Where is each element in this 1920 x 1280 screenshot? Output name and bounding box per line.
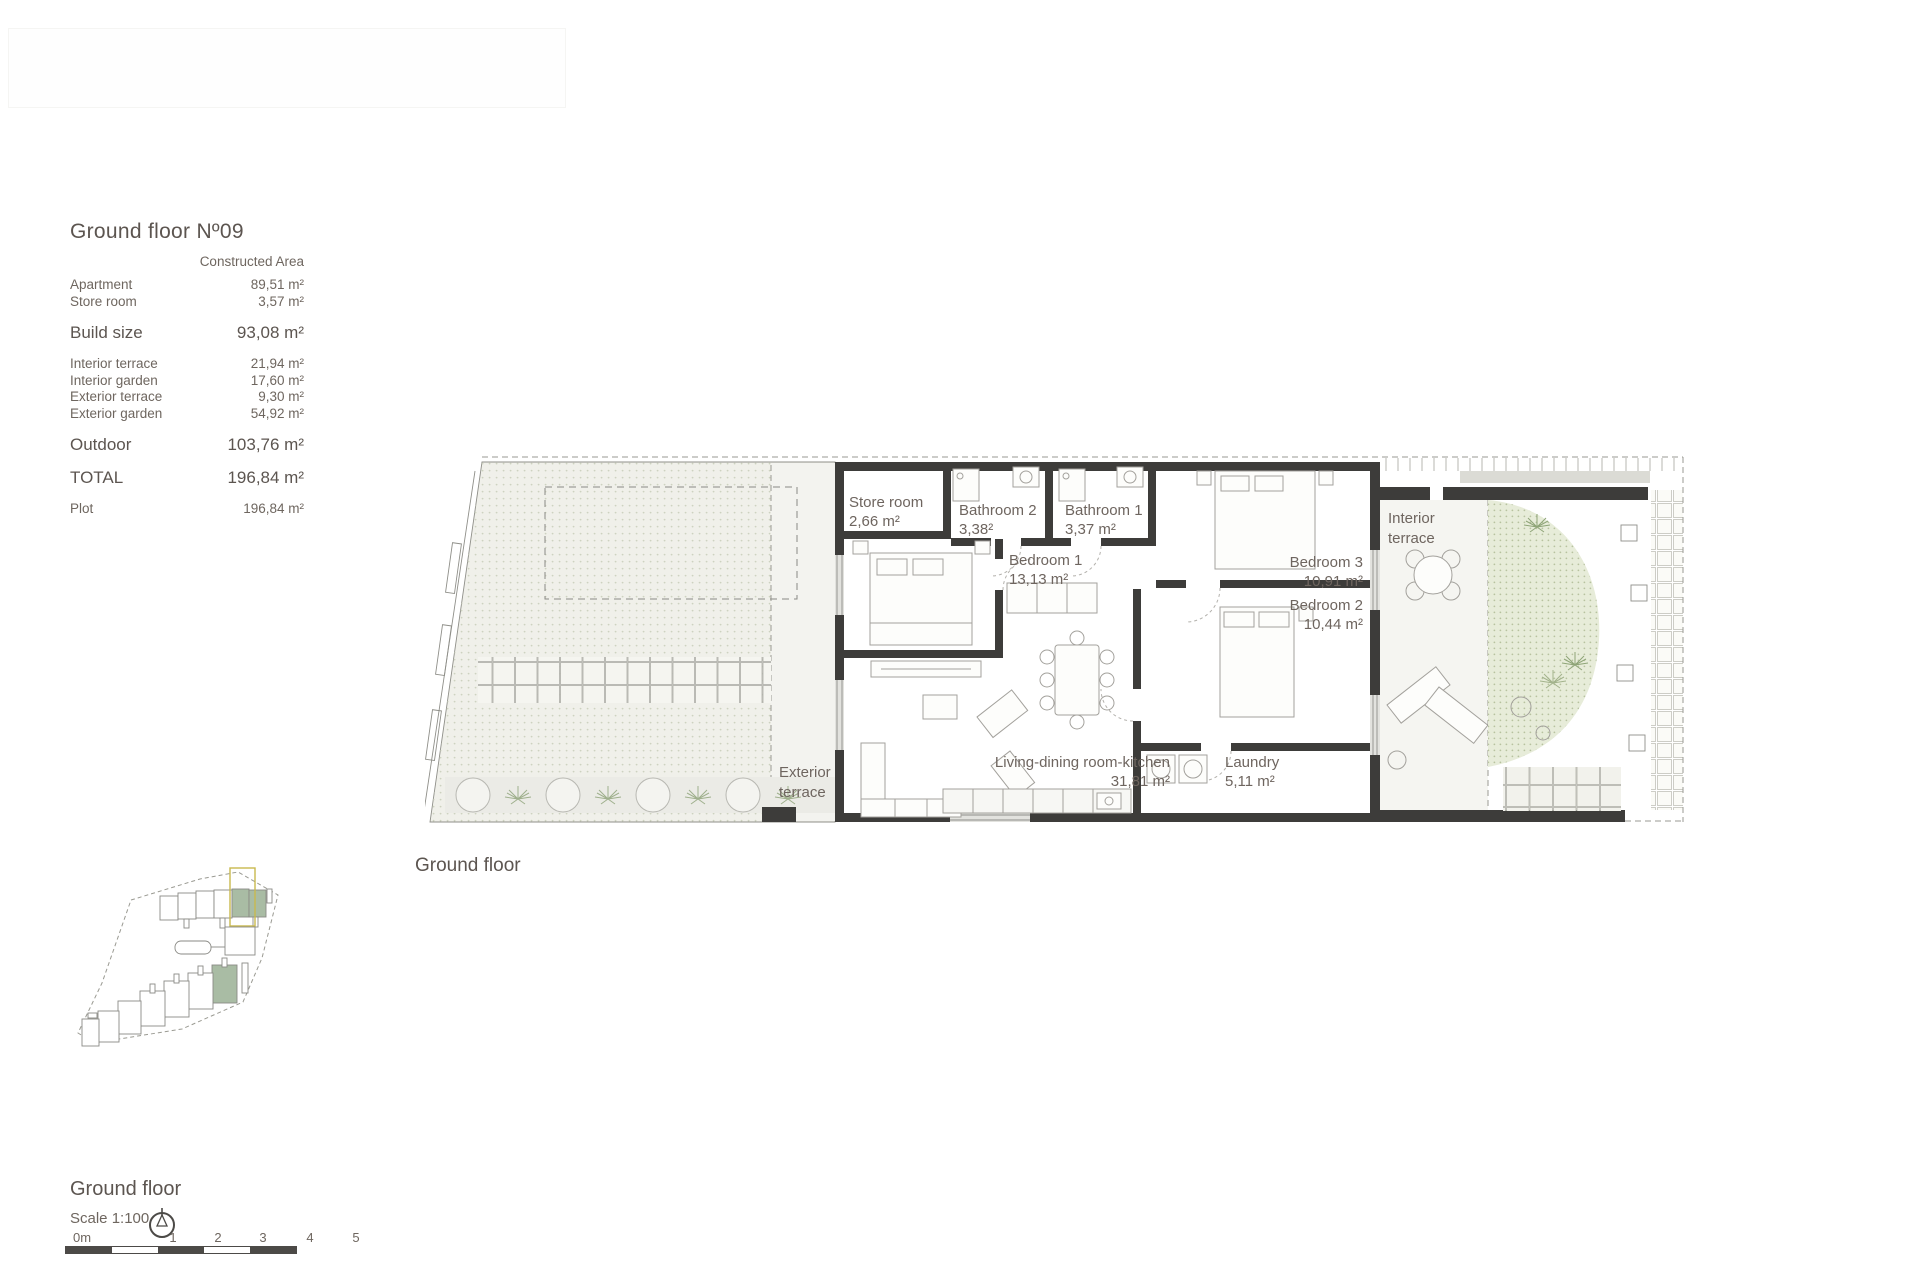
table-row-outdoor: Outdoor103,76 m² bbox=[70, 435, 304, 455]
scale-bar bbox=[66, 1247, 296, 1253]
bedroom-2-label: Bedroom 2 bbox=[1290, 597, 1363, 614]
armchairs bbox=[923, 690, 1035, 797]
site-key-plan bbox=[60, 865, 300, 1065]
table-row: Store room3,57 m² bbox=[70, 294, 304, 311]
page-title: Ground floor Nº09 bbox=[70, 220, 304, 244]
table-row-plot: Plot196,84 m² bbox=[70, 501, 304, 518]
laundry-area: 5,11 m² bbox=[1225, 773, 1275, 790]
table-row: Interior terrace21,94 m² bbox=[70, 356, 304, 373]
plan-caption: Ground floor bbox=[415, 855, 521, 877]
exterior-terrace-label-1: Exterior bbox=[779, 764, 831, 781]
floor-plan-sheet: Ground floor Nº09 Constructed Area Apart… bbox=[0, 0, 1920, 1280]
scan-artifact bbox=[8, 28, 566, 108]
center-block bbox=[175, 927, 255, 955]
table-row: Exterior garden54,92 m² bbox=[70, 406, 304, 423]
boundary-band bbox=[1460, 471, 1650, 483]
bedroom-1-label: Bedroom 1 bbox=[1009, 552, 1082, 569]
kitchen-counter bbox=[943, 789, 1131, 813]
bathroom-1-fixtures bbox=[1059, 467, 1143, 501]
table-row: Interior garden17,60 m² bbox=[70, 373, 304, 390]
paver-grid bbox=[478, 657, 771, 703]
legend-title: Ground floor bbox=[70, 1178, 181, 1201]
bathroom-2-fixtures bbox=[953, 467, 1039, 501]
store-room-label: Store room bbox=[849, 494, 923, 511]
scale-bar-ticks: 0m 1 2 3 4 5 bbox=[60, 1230, 310, 1244]
living-room-area: 31,81 m² bbox=[1111, 773, 1170, 790]
living-room-label: Living-dining room-kitchen bbox=[995, 754, 1170, 771]
table-row: Apartment89,51 m² bbox=[70, 277, 304, 294]
side-table bbox=[923, 695, 957, 719]
bedroom-1-area: 13,13 m² bbox=[1009, 571, 1068, 588]
sideboard bbox=[871, 661, 981, 677]
bedroom-1-bed bbox=[853, 541, 990, 645]
bedroom-2-bed bbox=[1220, 607, 1313, 717]
bedroom-2-area: 10,44 m² bbox=[1304, 616, 1363, 633]
garden-paver-block bbox=[1503, 767, 1621, 811]
interior-terrace-label-2: terrace bbox=[1388, 530, 1435, 547]
terrace-table bbox=[1414, 556, 1452, 594]
area-table-column-header: Constructed Area bbox=[70, 254, 304, 269]
laundry-label: Laundry bbox=[1225, 754, 1280, 771]
bathroom-2-label: Bathroom 2 bbox=[959, 502, 1037, 519]
boundary-hatch bbox=[1383, 458, 1683, 471]
exterior-terrace-label-2: terrace bbox=[779, 784, 826, 801]
floor-plan-drawing: Store room 2,66 m² Bathroom 2 3,38² Bath… bbox=[425, 455, 1690, 835]
area-table: Ground floor Nº09 Constructed Area Apart… bbox=[70, 220, 304, 518]
interior-garden bbox=[1488, 457, 1683, 822]
bathroom-1-area: 3,37 m² bbox=[1065, 521, 1116, 538]
bathroom-2-area: 3,38² bbox=[959, 521, 993, 538]
dining-table bbox=[1040, 631, 1114, 729]
bathroom-1-label: Bathroom 1 bbox=[1065, 502, 1143, 519]
table-row-build-size: Build size93,08 m² bbox=[70, 323, 304, 343]
store-room-area: 2,66 m² bbox=[849, 513, 900, 530]
kitchen-sink bbox=[1097, 793, 1121, 809]
table-row: Exterior terrace9,30 m² bbox=[70, 389, 304, 406]
exterior-garden bbox=[425, 462, 835, 822]
lower-unit-row bbox=[82, 958, 248, 1046]
table-row-total: TOTAL196,84 m² bbox=[70, 468, 304, 488]
bedroom-3-area: 10,91 m² bbox=[1304, 573, 1363, 590]
garden-path-pavers bbox=[1651, 490, 1683, 810]
bedroom-3-label: Bedroom 3 bbox=[1290, 554, 1363, 571]
terrace-wall-block bbox=[762, 807, 796, 822]
interior-terrace-label-1: Interior bbox=[1388, 510, 1435, 527]
